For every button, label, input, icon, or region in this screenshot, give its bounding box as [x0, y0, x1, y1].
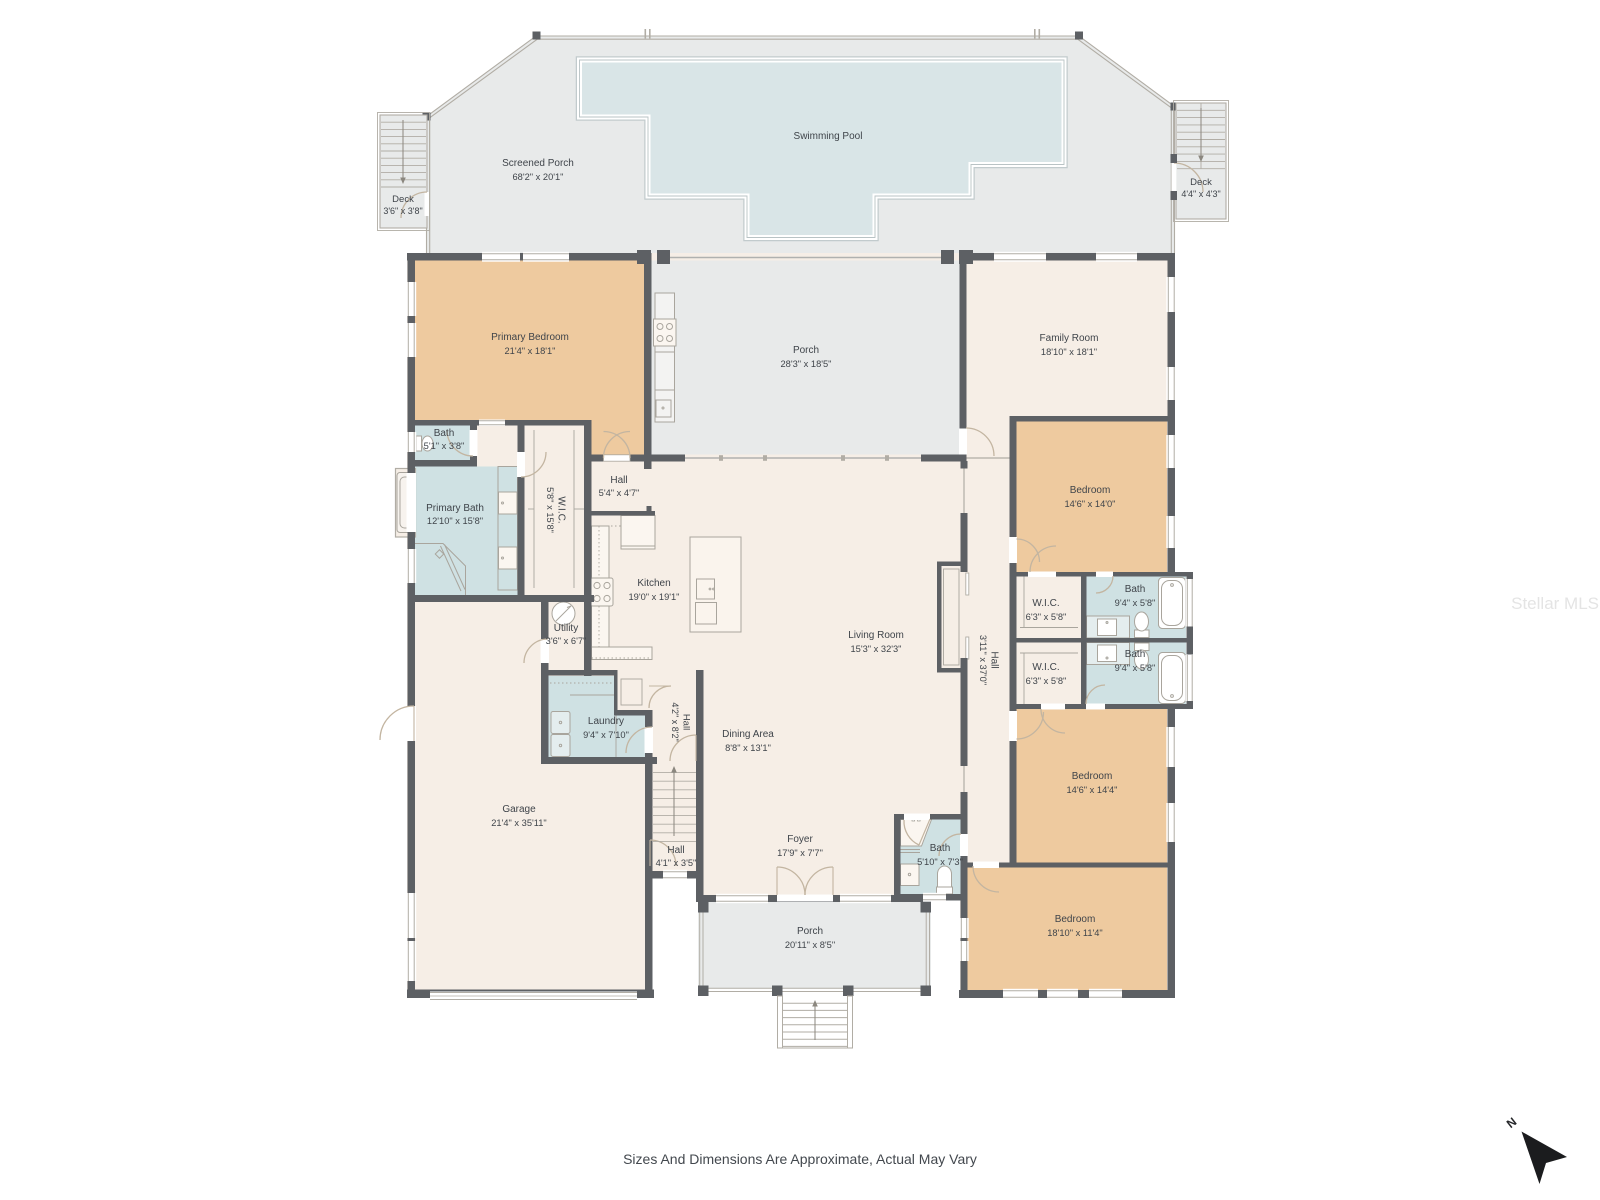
- svg-text:Deck: Deck: [392, 194, 414, 205]
- svg-text:6'3" x 5'8": 6'3" x 5'8": [1026, 612, 1067, 622]
- svg-text:17'9" x 7'7": 17'9" x 7'7": [777, 848, 823, 858]
- svg-text:Bath: Bath: [1125, 649, 1146, 660]
- svg-text:14'6" x 14'0": 14'6" x 14'0": [1065, 499, 1116, 509]
- svg-text:12'10" x 15'8": 12'10" x 15'8": [427, 516, 483, 526]
- svg-text:5'1" x 3'8": 5'1" x 3'8": [424, 441, 465, 451]
- svg-text:Swimming Pool: Swimming Pool: [794, 131, 863, 142]
- svg-text:4'4" x 4'3": 4'4" x 4'3": [1181, 189, 1220, 199]
- svg-text:Hall: Hall: [610, 475, 627, 486]
- svg-text:68'2" x 20'1": 68'2" x 20'1": [513, 172, 564, 182]
- svg-text:Dining Area: Dining Area: [722, 729, 774, 740]
- svg-text:W.I.C.: W.I.C.: [1032, 662, 1059, 673]
- svg-text:5'10" x 7'3": 5'10" x 7'3": [917, 857, 963, 867]
- svg-text:9'4" x 7'10": 9'4" x 7'10": [583, 730, 629, 740]
- svg-text:Deck: Deck: [1190, 177, 1212, 188]
- svg-text:W.I.C.: W.I.C.: [556, 496, 567, 523]
- svg-text:Bedroom: Bedroom: [1055, 914, 1096, 925]
- svg-text:Bath: Bath: [434, 428, 455, 439]
- svg-text:9'4" x 5'8": 9'4" x 5'8": [1115, 598, 1156, 608]
- svg-text:Kitchen: Kitchen: [637, 578, 670, 589]
- svg-text:Hall: Hall: [667, 845, 684, 856]
- svg-text:3'11" x 37'0": 3'11" x 37'0": [978, 635, 988, 685]
- svg-text:W.I.C.: W.I.C.: [1032, 598, 1059, 609]
- svg-text:Hall: Hall: [681, 714, 692, 730]
- svg-text:21'4" x 18'1": 21'4" x 18'1": [505, 346, 556, 356]
- svg-text:Laundry: Laundry: [588, 716, 624, 727]
- svg-text:5'4" x 4'7": 5'4" x 4'7": [599, 488, 640, 498]
- svg-text:Primary Bedroom: Primary Bedroom: [491, 332, 569, 343]
- svg-text:Porch: Porch: [793, 345, 819, 356]
- svg-text:4'2" x 8'2": 4'2" x 8'2": [670, 702, 680, 741]
- svg-text:5'8" x 15'8": 5'8" x 15'8": [545, 487, 555, 533]
- svg-text:15'3" x 32'3": 15'3" x 32'3": [851, 644, 902, 654]
- svg-text:Bedroom: Bedroom: [1070, 485, 1111, 496]
- svg-text:3'6" x 6'7": 3'6" x 6'7": [546, 636, 587, 646]
- svg-text:19'0" x 19'1": 19'0" x 19'1": [629, 592, 680, 602]
- svg-text:Stellar MLS: Stellar MLS: [1511, 594, 1599, 613]
- svg-text:14'6" x 14'4": 14'6" x 14'4": [1067, 785, 1118, 795]
- svg-text:4'1" x 3'5": 4'1" x 3'5": [656, 858, 697, 868]
- svg-text:Primary Bath: Primary Bath: [426, 503, 484, 514]
- svg-text:Foyer: Foyer: [787, 834, 813, 845]
- svg-text:8'8" x 13'1": 8'8" x 13'1": [725, 743, 771, 753]
- svg-text:6'3" x 5'8": 6'3" x 5'8": [1026, 676, 1067, 686]
- svg-text:9'4" x 5'8": 9'4" x 5'8": [1115, 663, 1156, 673]
- svg-text:Garage: Garage: [502, 804, 536, 815]
- svg-text:Bath: Bath: [1125, 584, 1146, 595]
- svg-text:3'6" x 3'8": 3'6" x 3'8": [383, 206, 422, 216]
- svg-text:18'10" x 18'1": 18'10" x 18'1": [1041, 347, 1097, 357]
- svg-text:28'3" x 18'5": 28'3" x 18'5": [781, 359, 832, 369]
- svg-text:18'10" x 11'4": 18'10" x 11'4": [1047, 928, 1102, 938]
- svg-text:Sizes And Dimensions Are Appro: Sizes And Dimensions Are Approximate, Ac…: [623, 1151, 977, 1167]
- svg-text:Family Room: Family Room: [1040, 333, 1099, 344]
- svg-text:Bath: Bath: [930, 843, 951, 854]
- svg-text:20'11" x 8'5": 20'11" x 8'5": [785, 940, 835, 950]
- svg-text:Bedroom: Bedroom: [1072, 771, 1113, 782]
- svg-text:Utility: Utility: [554, 623, 578, 634]
- svg-text:Living Room: Living Room: [848, 630, 904, 641]
- svg-text:Hall: Hall: [989, 651, 1000, 668]
- svg-text:Screened Porch: Screened Porch: [502, 158, 574, 169]
- svg-text:21'4" x 35'11": 21'4" x 35'11": [491, 818, 546, 828]
- svg-text:Porch: Porch: [797, 926, 823, 937]
